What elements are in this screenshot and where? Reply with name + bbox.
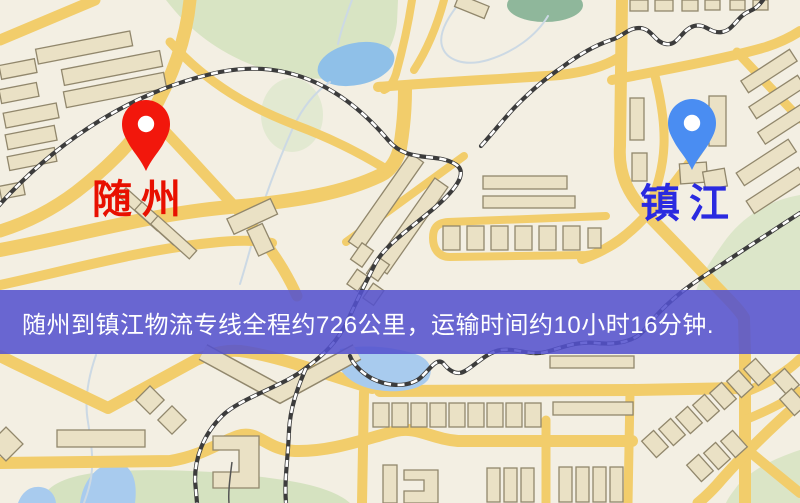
origin-label: 随州 bbox=[92, 177, 190, 222]
destination-label: 镇江 bbox=[640, 181, 738, 226]
destination-pin-icon[interactable] bbox=[668, 99, 716, 170]
origin-pin-icon[interactable] bbox=[122, 100, 170, 171]
destination-pin-hole bbox=[684, 115, 700, 131]
route-banner: 随州到镇江物流专线全程约726公里，运输时间约10小时16分钟. bbox=[0, 290, 800, 354]
map-canvas[interactable]: 随州 镇江 随州到镇江物流专线全程约726公里，运输时间约10小时16分钟. bbox=[0, 0, 800, 503]
map-image: 随州 镇江 bbox=[0, 0, 800, 503]
route-banner-text: 随州到镇江物流专线全程约726公里，运输时间约10小时16分钟. bbox=[22, 305, 714, 340]
origin-pin-hole bbox=[138, 116, 154, 132]
